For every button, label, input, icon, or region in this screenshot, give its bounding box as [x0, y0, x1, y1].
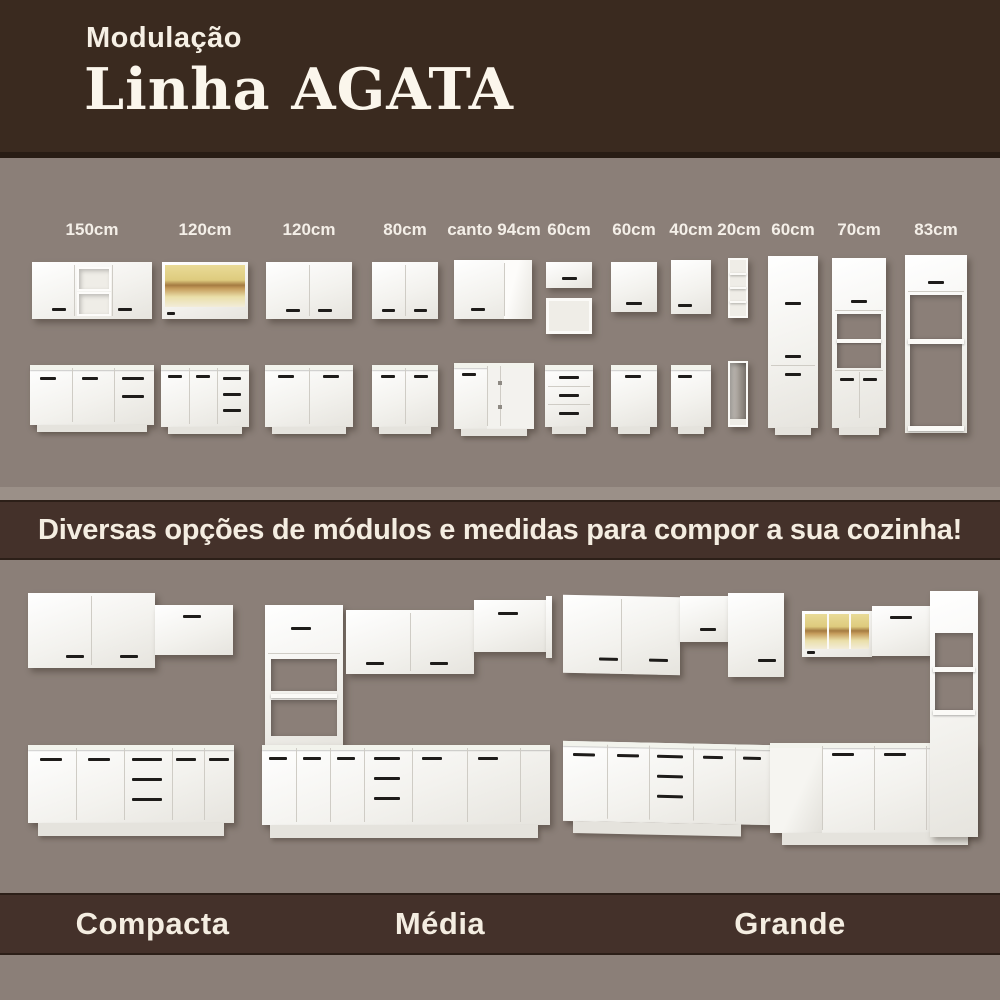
door-handle	[890, 616, 912, 619]
base-cabinet	[161, 365, 249, 427]
door-handle	[118, 308, 132, 311]
panel-seam	[504, 263, 505, 316]
kitchen-grande	[562, 560, 980, 893]
door-handle	[785, 373, 801, 376]
base-cabinet	[265, 365, 353, 427]
wall-cabinet-left-run	[563, 595, 680, 675]
door-handle	[462, 373, 476, 376]
panel-seam	[189, 368, 190, 424]
kitchen-media	[262, 560, 552, 893]
column-niche	[730, 363, 746, 419]
door-handle	[807, 651, 815, 654]
door-handle	[785, 302, 801, 305]
panel-seam	[74, 265, 75, 316]
door-handle	[337, 757, 355, 760]
door-handle	[66, 655, 84, 658]
door-handle	[291, 627, 311, 630]
tall-tower	[930, 591, 978, 837]
panel-seam	[124, 748, 125, 820]
tall-tower	[265, 605, 343, 747]
plinth	[573, 821, 741, 837]
base-counter	[262, 745, 550, 825]
door-handle	[414, 375, 428, 378]
modules-grid: 150cm 120cm	[0, 158, 1000, 487]
door-handle	[700, 628, 716, 631]
size-label: canto 94cm	[447, 220, 541, 240]
open-niche	[935, 672, 973, 710]
panel-seam	[735, 747, 736, 821]
drawer-handle	[132, 778, 162, 781]
door-handle	[40, 758, 62, 761]
counter-top	[671, 365, 711, 370]
panel-seam	[835, 310, 883, 311]
door-handle	[196, 375, 210, 378]
door-handle	[832, 753, 854, 756]
size-label: 70cm	[837, 220, 880, 240]
panel-seam	[112, 265, 113, 316]
base-cabinet	[30, 365, 154, 425]
module-80cm: 80cm	[371, 158, 439, 487]
wall-cabinet	[671, 260, 711, 314]
plinth	[678, 427, 704, 434]
kitchen-label-grande: Grande	[690, 895, 890, 953]
wall-cabinet-extension	[155, 605, 233, 655]
shelf	[933, 710, 975, 715]
door-handle	[278, 375, 294, 378]
door-handle	[743, 757, 761, 760]
wall-cabinet-group	[28, 593, 155, 668]
door-handle	[366, 662, 384, 665]
drawer-handle	[374, 797, 400, 800]
door-handle	[269, 757, 287, 760]
door-handle	[286, 309, 300, 312]
open-niche	[77, 267, 111, 291]
wall-cabinet-group	[346, 610, 474, 674]
wall-cabinet	[372, 262, 438, 319]
panel-seam	[405, 265, 406, 316]
door-seam	[771, 365, 815, 366]
footer-labels: Compacta Média Grande	[0, 893, 1000, 955]
hinge	[498, 381, 502, 385]
door-handle	[678, 304, 692, 307]
shelf	[271, 694, 337, 698]
open-niche	[271, 700, 337, 736]
drawer-handle	[559, 376, 579, 379]
kitchen-label-media: Média	[330, 895, 550, 953]
module-70cm-tower: 70cm	[832, 158, 886, 487]
door-handle	[758, 659, 776, 662]
panel-seam	[621, 599, 622, 671]
panel-seam	[330, 748, 331, 822]
door-handle	[928, 281, 944, 284]
corner-wall-cabinet	[454, 260, 532, 319]
panel-seam	[364, 748, 365, 822]
panel-seam	[309, 265, 310, 316]
open-frame	[910, 295, 962, 339]
door-handle	[840, 378, 854, 381]
door-handle	[573, 753, 595, 756]
size-label: 150cm	[66, 220, 119, 240]
door-handle	[884, 753, 906, 756]
panel-seam	[172, 748, 173, 820]
corner-base-cabinet	[454, 363, 534, 429]
panel-seam	[76, 748, 77, 820]
door-handle	[382, 309, 395, 312]
tall-pantry	[768, 256, 818, 428]
door-handle	[785, 355, 801, 358]
size-label: 120cm	[179, 220, 232, 240]
corner-base-panel	[770, 748, 822, 833]
counter-top	[262, 745, 550, 750]
wall-glass-cabinet	[802, 611, 872, 657]
side-panel	[546, 596, 552, 658]
bottom-rail	[908, 426, 964, 431]
panel-seam	[874, 746, 875, 830]
door-handle	[183, 615, 201, 618]
small-wall-cabinet	[546, 262, 592, 288]
door-handle	[120, 655, 138, 658]
open-niche	[77, 292, 111, 316]
shelf-line	[730, 273, 746, 275]
door-seam	[859, 372, 860, 418]
door-handle	[167, 312, 175, 315]
door-handle	[478, 757, 498, 760]
glass-mullion	[849, 614, 851, 649]
door-handle	[617, 754, 639, 757]
door-handle	[40, 377, 56, 380]
door-handle	[626, 302, 642, 305]
base-cabinet	[671, 365, 711, 427]
plinth	[461, 429, 527, 436]
panel-seam	[467, 748, 468, 822]
door-handle	[562, 277, 577, 280]
open-niche	[271, 659, 337, 691]
module-150cm: 150cm	[30, 158, 154, 487]
module-40cm: 40cm	[670, 158, 712, 487]
drawer-handle	[657, 775, 683, 779]
plinth	[379, 427, 431, 434]
open-base-column	[728, 361, 748, 427]
door-handle	[625, 375, 641, 378]
panel-seam	[649, 746, 650, 820]
drawer-handle	[657, 755, 683, 759]
page-title: Linha AGATA	[84, 56, 514, 123]
drawer-handle	[559, 394, 579, 397]
shelf-line	[730, 287, 746, 289]
drawer-handle	[223, 377, 241, 380]
shelf	[837, 339, 881, 343]
base-drawer-cabinet	[545, 365, 593, 427]
base-counter	[28, 745, 234, 823]
module-60cm-pantry: 60cm	[767, 158, 819, 487]
module-83cm-surround: 83cm	[905, 158, 967, 487]
kitchen-examples	[0, 560, 1000, 893]
module-120cm: 120cm	[264, 158, 354, 487]
counter-top	[611, 365, 657, 370]
counter-top	[545, 365, 593, 370]
poster: Modulação Linha AGATA 150cm	[0, 0, 1000, 1000]
size-label: 60cm	[612, 220, 655, 240]
panel-seam	[500, 366, 501, 426]
panel-seam	[309, 368, 310, 424]
panel-seam	[217, 368, 218, 424]
counter-top	[563, 741, 771, 750]
panel-seam	[835, 370, 883, 371]
door-handle	[168, 375, 182, 378]
module-120cm-glass: 120cm	[160, 158, 250, 487]
glass-mullion	[827, 614, 829, 649]
base-cabinet	[611, 365, 657, 427]
size-label: 80cm	[383, 220, 426, 240]
panel-seam	[487, 366, 488, 426]
door-handle	[851, 300, 867, 303]
plinth	[775, 428, 811, 435]
header: Modulação Linha AGATA	[0, 0, 1000, 158]
corner-side-panel	[504, 260, 532, 319]
shelf-line	[730, 301, 746, 303]
drawer-handle	[223, 393, 241, 396]
module-60cm-door: 60cm	[610, 158, 658, 487]
wall-glass-cabinet	[162, 262, 248, 319]
door-handle	[414, 309, 427, 312]
counter-top	[30, 365, 154, 370]
wall-cabinet	[266, 262, 352, 319]
panel-seam	[908, 291, 964, 292]
door-handle	[323, 375, 339, 378]
panel-seam	[72, 368, 73, 422]
size-label: 120cm	[283, 220, 336, 240]
door-handle	[863, 378, 877, 381]
size-label: 60cm	[547, 220, 590, 240]
panel-seam	[607, 745, 608, 819]
door-handle	[498, 612, 518, 615]
door-handle	[649, 659, 668, 662]
plinth	[618, 427, 650, 434]
door-handle	[82, 377, 98, 380]
door-handle	[318, 309, 332, 312]
door-handle	[471, 308, 485, 311]
drawer-handle	[122, 377, 144, 380]
header-subtitle: Modulação	[86, 22, 242, 55]
drawer-handle	[132, 798, 162, 801]
panel-seam	[693, 747, 694, 821]
drawer-handle	[374, 777, 400, 780]
panel-seam	[822, 746, 823, 830]
drawer-handle	[559, 412, 579, 415]
size-label: 83cm	[914, 220, 957, 240]
panel-seam	[114, 368, 115, 422]
counter-top	[161, 365, 249, 370]
plinth	[839, 428, 879, 435]
door-handle	[381, 375, 395, 378]
base-cabinet	[372, 365, 438, 427]
module-canto-94cm: canto 94cm	[454, 158, 534, 487]
panel-seam	[91, 596, 92, 665]
size-label: 40cm	[669, 220, 712, 240]
wall-cabinet-extension	[474, 600, 546, 652]
plinth	[168, 427, 242, 434]
tower-top-door	[872, 606, 930, 656]
panel-seam	[268, 653, 340, 654]
door-handle	[176, 758, 196, 761]
size-label: 20cm	[717, 220, 760, 240]
size-label: 60cm	[771, 220, 814, 240]
door-handle	[430, 662, 448, 665]
module-20cm: 20cm	[727, 158, 751, 487]
plinth	[552, 427, 586, 434]
panel-seam	[204, 748, 205, 820]
door-handle	[52, 308, 66, 311]
panel-seam	[412, 748, 413, 822]
wood-interior	[805, 614, 869, 649]
panel-seam	[410, 613, 411, 671]
kitchen-label-compacta: Compacta	[60, 895, 245, 953]
panel-seam	[296, 748, 297, 822]
panel-seam	[926, 746, 927, 830]
hinge	[498, 405, 502, 409]
tall-tower	[832, 258, 886, 428]
tall-surround	[905, 255, 967, 433]
plinth	[38, 823, 224, 836]
kitchen-compacta	[25, 560, 237, 893]
open-wall-box	[546, 298, 592, 334]
door-handle	[422, 757, 442, 760]
banner: Diversas opções de módulos e medidas par…	[0, 500, 1000, 560]
door-handle	[703, 756, 723, 759]
drawer-handle	[374, 757, 400, 760]
door-handle	[209, 758, 229, 761]
drawer-seam	[548, 404, 590, 405]
door-handle	[599, 658, 618, 661]
panel-seam	[405, 368, 406, 424]
corner-wall-column	[728, 593, 784, 677]
base-counter-left-run	[563, 741, 771, 825]
panel-seam	[520, 748, 521, 822]
wall-cabinet	[32, 262, 152, 319]
door-handle	[88, 758, 110, 761]
door-handle	[303, 757, 321, 760]
module-60cm-drawers: 60cm	[545, 158, 593, 487]
plinth	[37, 425, 147, 432]
drawer-handle	[122, 395, 144, 398]
wood-interior	[165, 265, 245, 307]
divider-strip	[0, 487, 1000, 500]
drawer-seam	[548, 386, 590, 387]
corner-return	[487, 368, 534, 429]
plinth	[272, 427, 346, 434]
bottom-margin	[0, 955, 1000, 1000]
plinth	[270, 825, 538, 838]
wall-cabinet	[611, 262, 657, 312]
drawer-handle	[657, 795, 683, 799]
banner-text: Diversas opções de módulos e medidas par…	[38, 514, 962, 546]
open-shelf-column	[728, 258, 748, 318]
wall-cabinet-over-gap	[680, 596, 728, 642]
door-handle	[678, 375, 692, 378]
open-frame	[910, 344, 962, 426]
drawer-handle	[223, 409, 241, 412]
open-niche	[935, 633, 973, 667]
drawer-handle	[132, 758, 162, 761]
